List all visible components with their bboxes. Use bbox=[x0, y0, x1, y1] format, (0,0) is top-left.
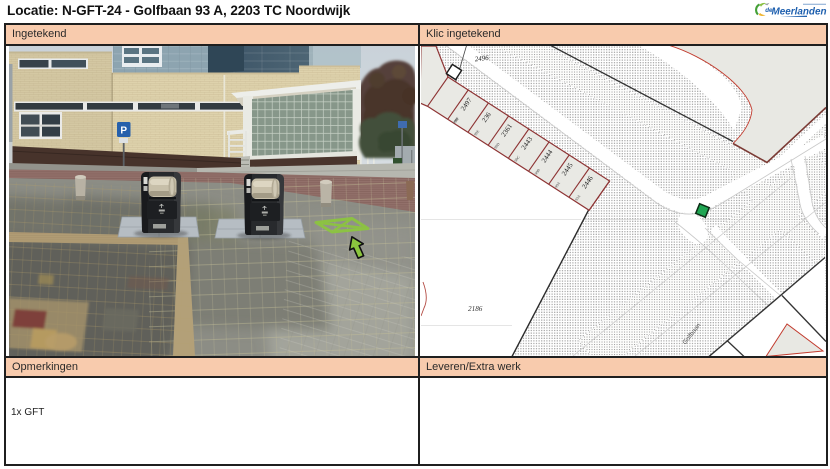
svg-text:2186: 2186 bbox=[468, 305, 483, 313]
svg-text:Meerlanden: Meerlanden bbox=[772, 7, 827, 18]
svg-text:2496: 2496 bbox=[474, 54, 489, 63]
svg-text:P: P bbox=[120, 126, 127, 137]
